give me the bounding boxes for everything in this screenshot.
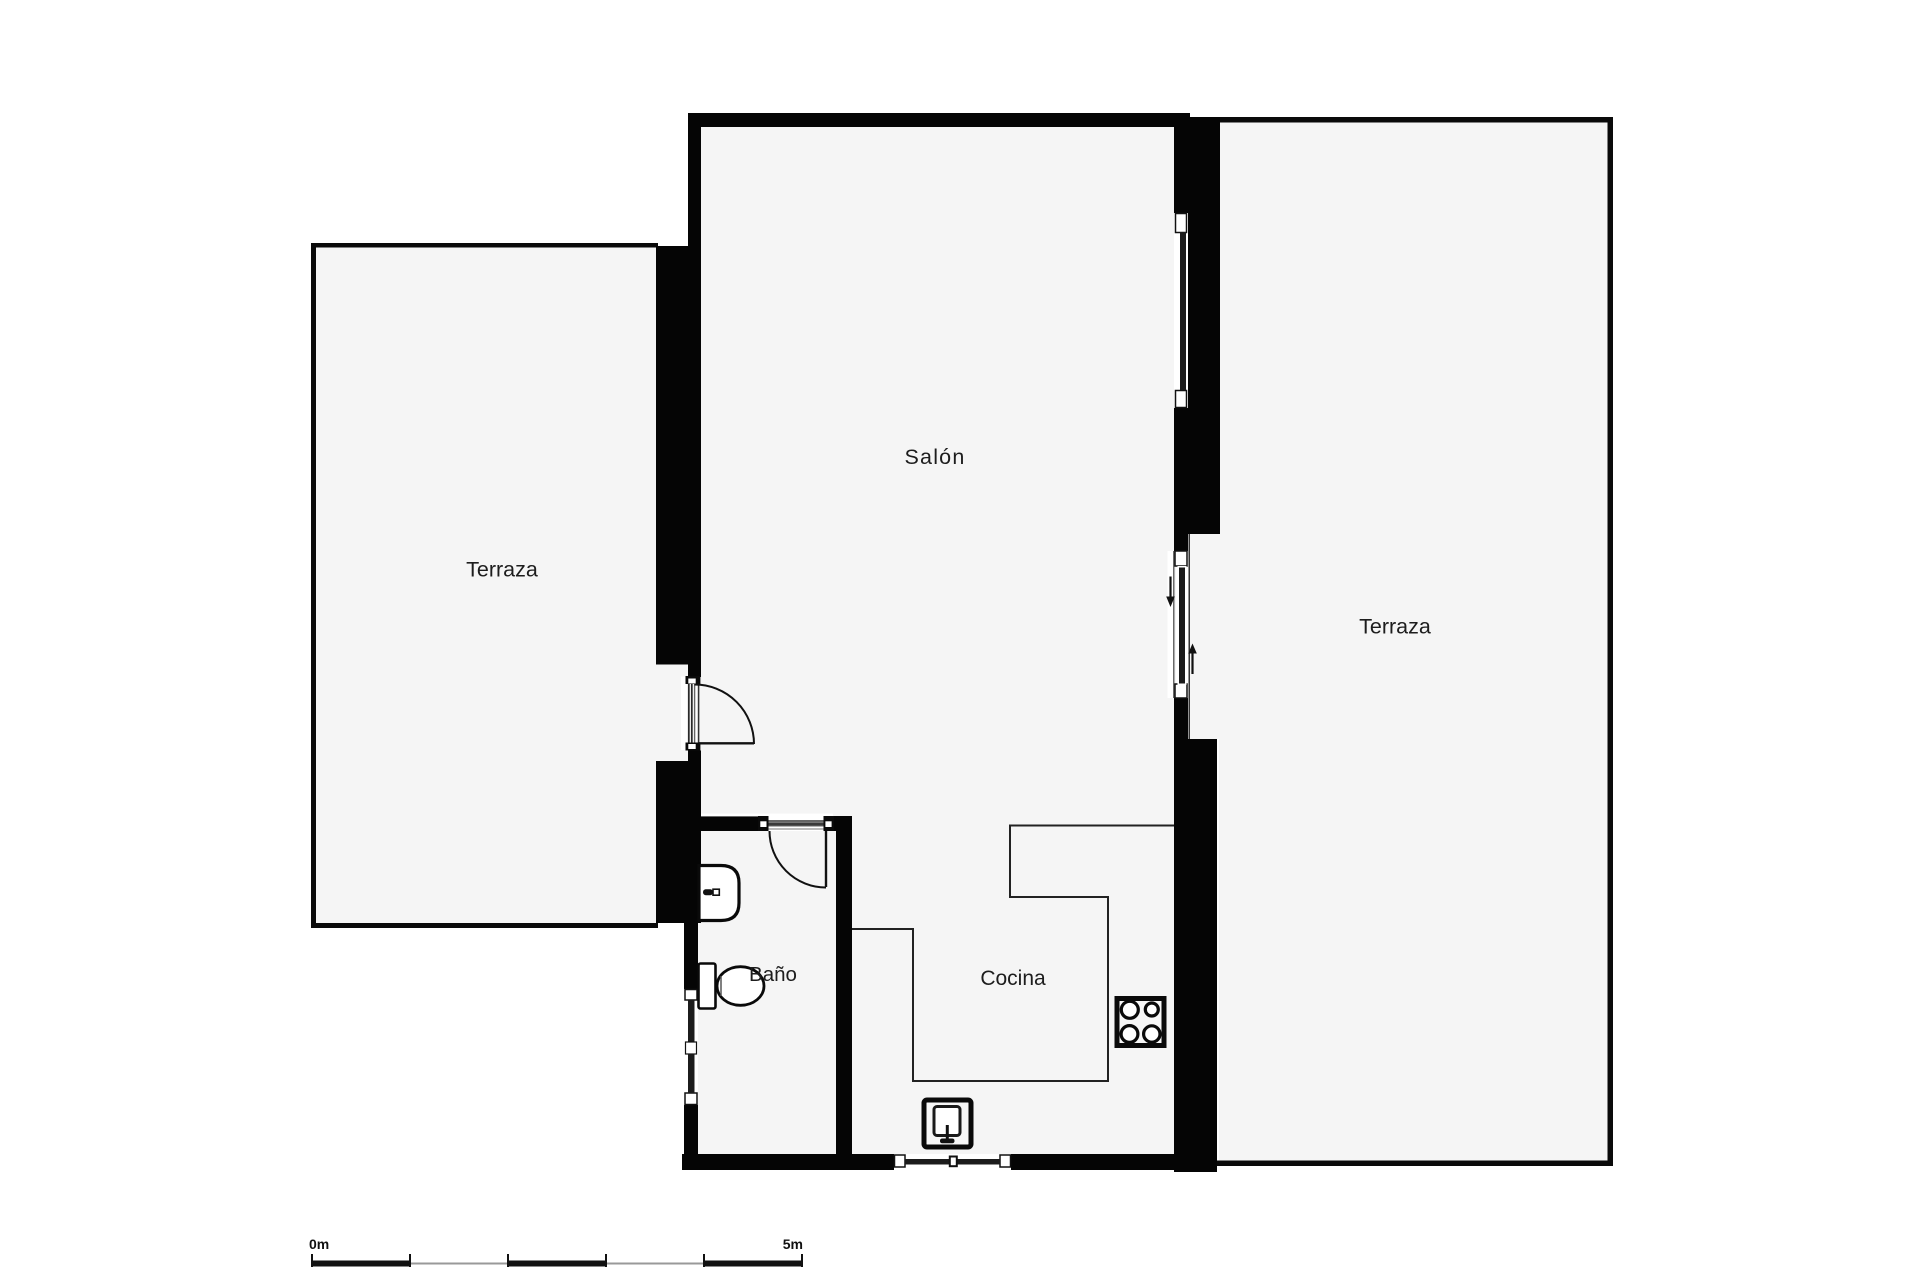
svg-text:0m: 0m [309,1236,329,1252]
svg-text:Salón: Salón [905,445,966,469]
svg-text:Cocina: Cocina [980,967,1046,990]
svg-text:Terraza: Terraza [466,558,538,582]
svg-text:Baño: Baño [749,963,797,986]
svg-text:5m: 5m [783,1236,803,1252]
svg-text:Terraza: Terraza [1359,615,1431,639]
